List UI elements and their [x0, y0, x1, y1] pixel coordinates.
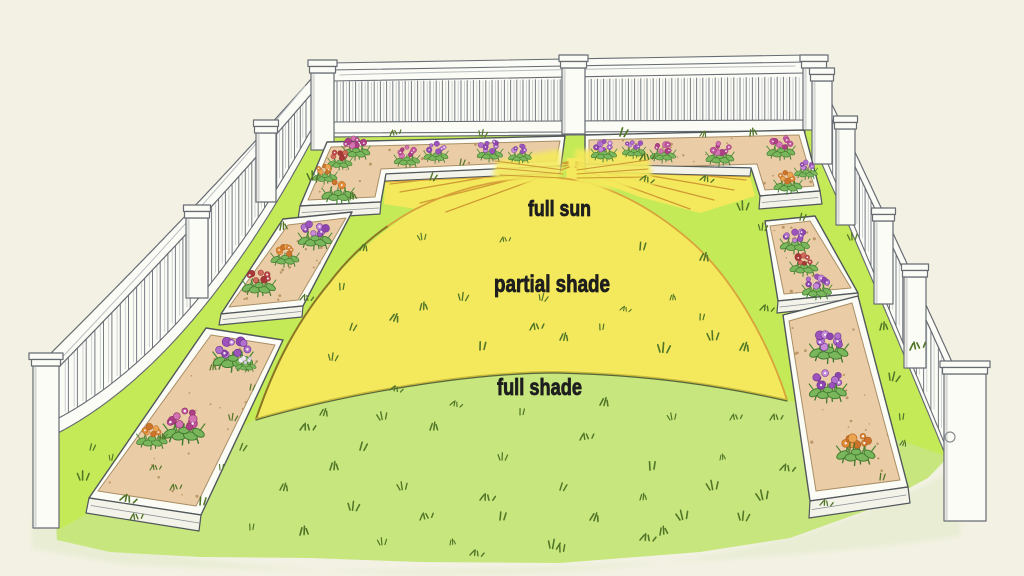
svg-text:partial shade: partial shade	[494, 271, 610, 298]
svg-text:full sun: full sun	[528, 196, 591, 221]
svg-text:full shade: full shade	[497, 374, 582, 400]
